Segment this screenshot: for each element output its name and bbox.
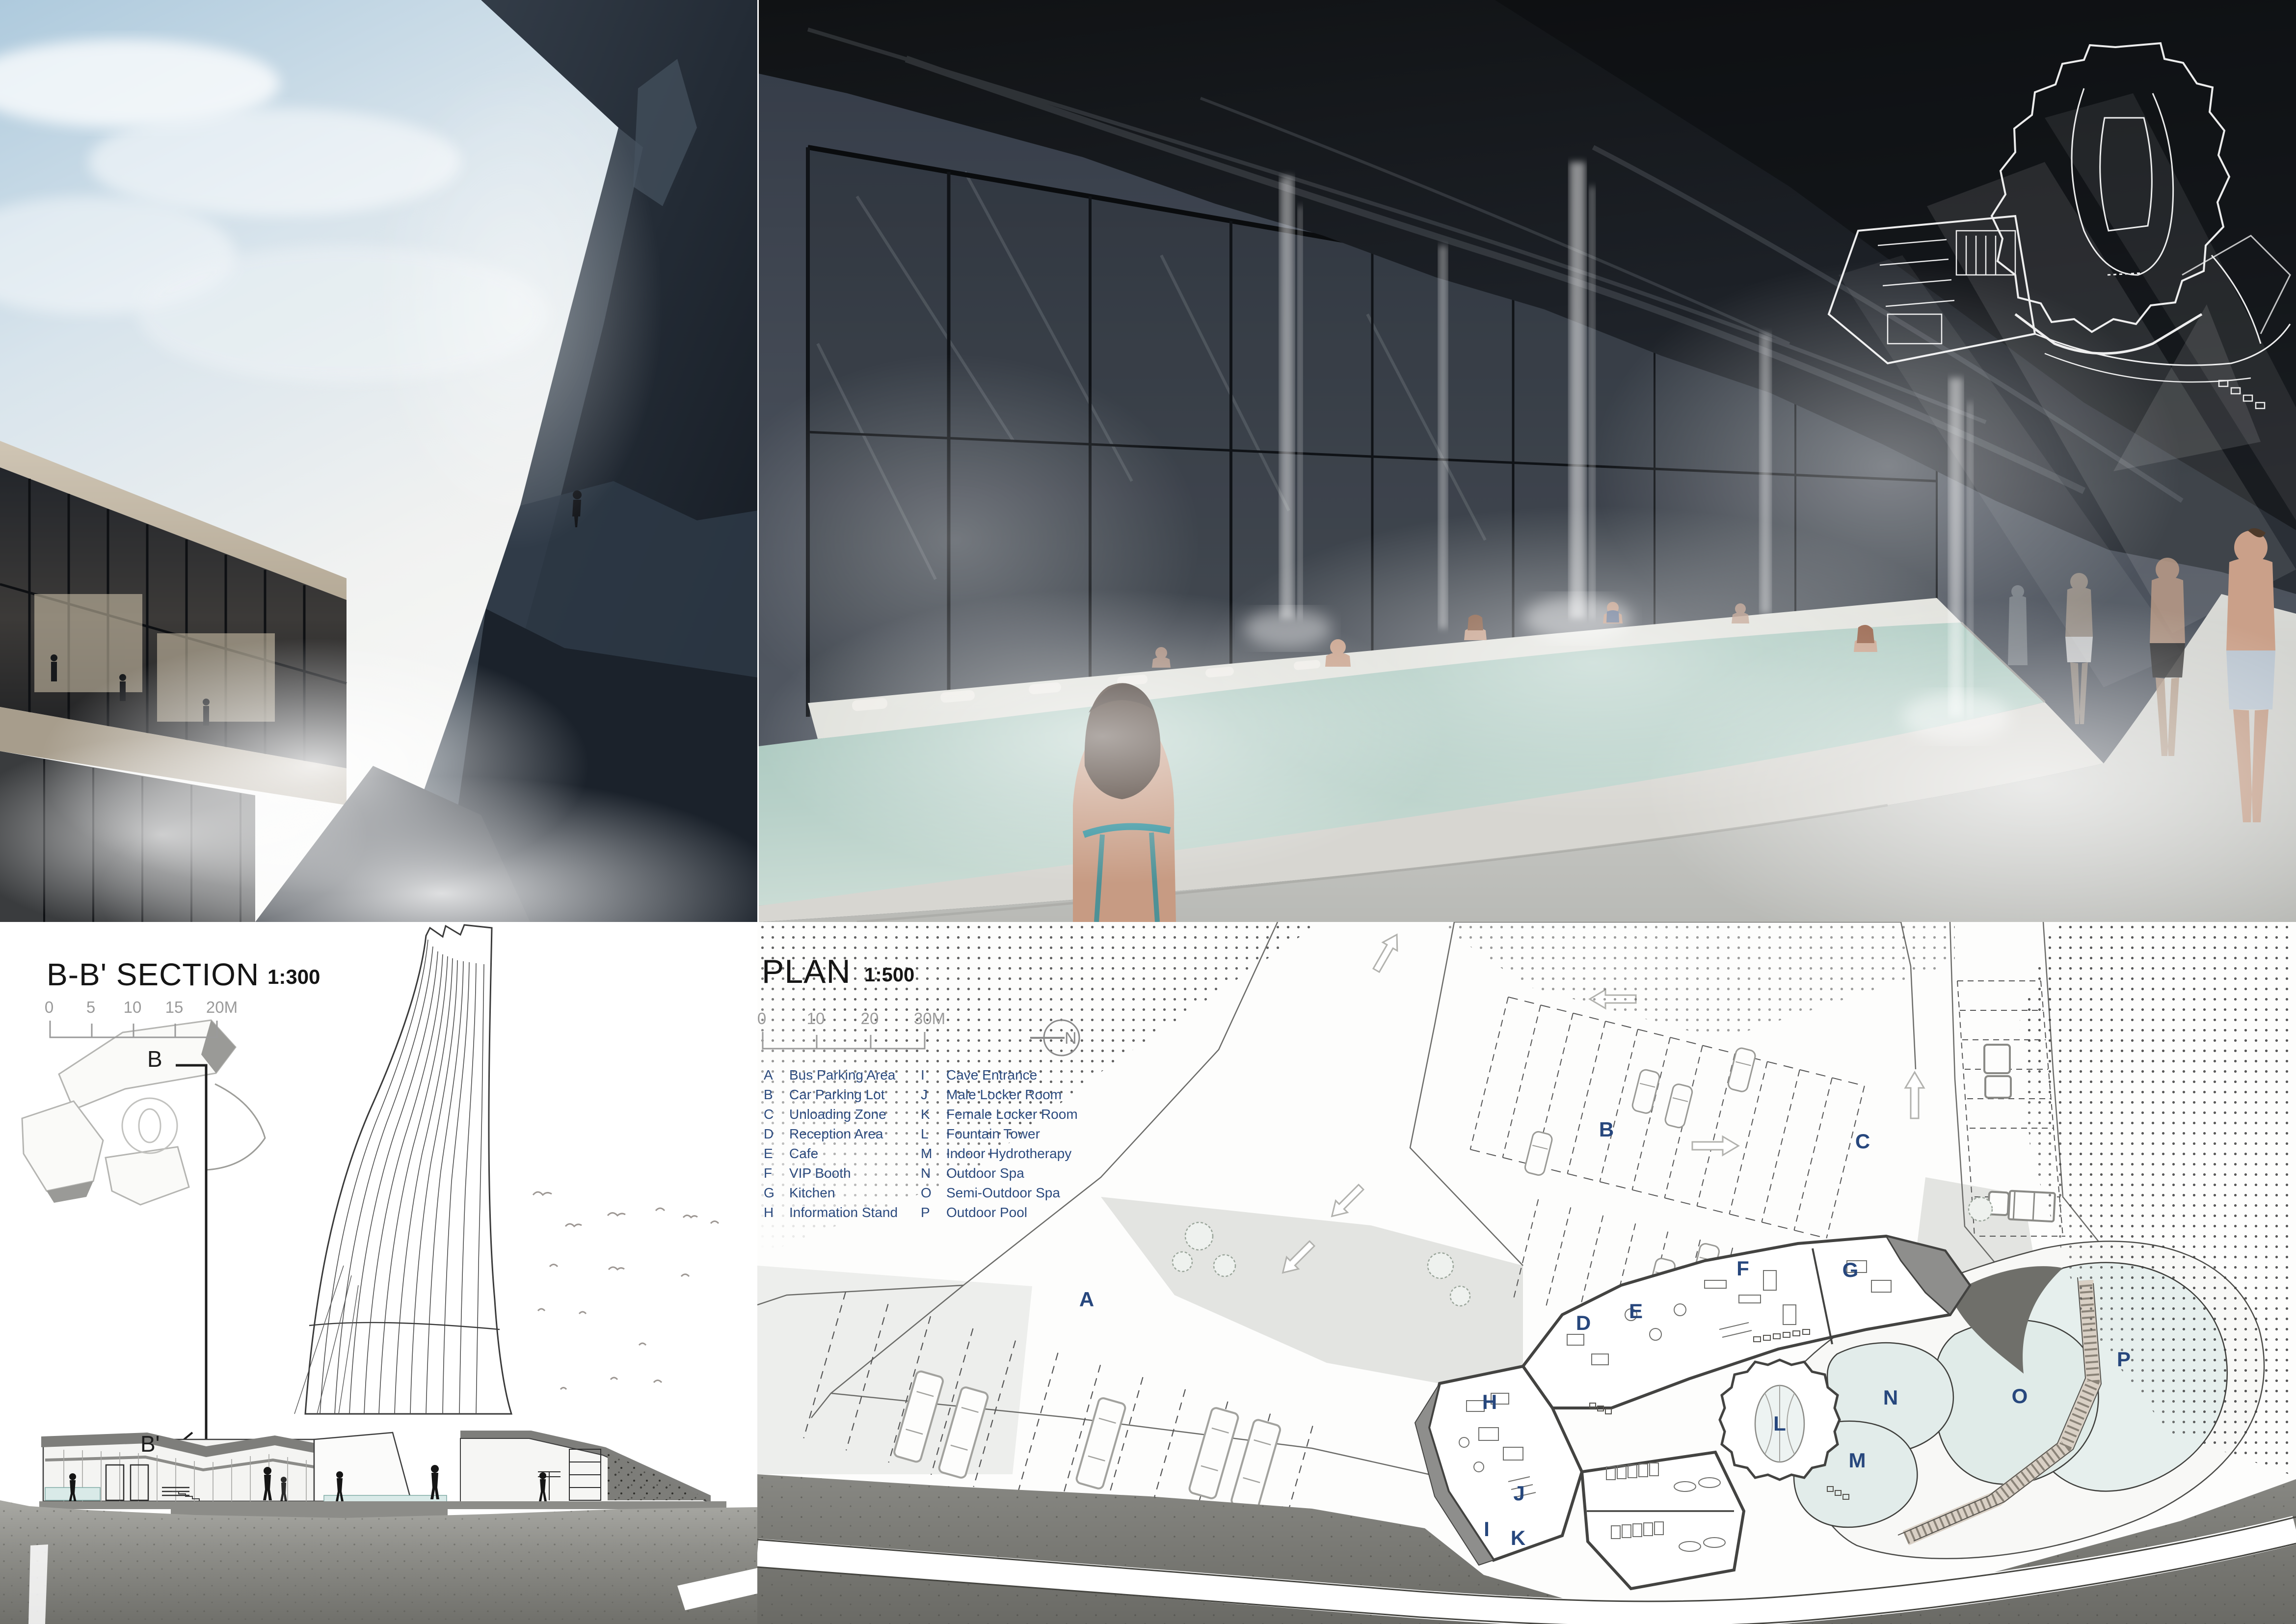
area-label-indoor-hydrotherapy: M	[1849, 1449, 1866, 1472]
legend-item: ECafe	[764, 1144, 898, 1164]
plan-panel: PLAN 1:500 0 10 20 30M N	[757, 922, 2296, 1624]
area-label-information: H	[1482, 1390, 1497, 1414]
legend-item: ICave Entrance	[921, 1065, 1078, 1085]
area-label-car-parking: B	[1599, 1118, 1614, 1141]
north-arrow-icon: N	[1026, 1012, 1090, 1066]
cave-pool-render-image	[759, 0, 2296, 922]
plan-scale-bar: 0 10 20 30M	[762, 1009, 968, 1052]
area-label-fountain-tower: L	[1773, 1412, 1786, 1435]
key-plan-inset	[22, 1020, 265, 1205]
legend-item: NOutdoor Spa	[921, 1164, 1078, 1183]
legend-item: DReception Area	[764, 1124, 898, 1144]
legend-item: FVIP Booth	[764, 1164, 898, 1183]
area-label-outdoor-pool: P	[2117, 1348, 2131, 1371]
area-label-reception: D	[1576, 1311, 1591, 1335]
legend-item: CUnloading Zone	[764, 1105, 898, 1124]
scale-bar-icon	[762, 1031, 929, 1051]
keyplan-cut-start-label: B	[147, 1046, 162, 1072]
canyon-render-drawing	[0, 0, 757, 922]
cliff-watercolor	[0, 1500, 757, 1624]
plan-legend-col1: ABus Parking Area BCar Parking Lot CUnlo…	[764, 1065, 898, 1222]
plan-legend-col2: ICave Entrance JMale Locker Room KFemale…	[921, 1065, 1078, 1222]
legend-item: KFemale Locker Room	[921, 1105, 1078, 1124]
section-panel: B-B' SECTION 1:300 0 5 10 15 20M B B'	[0, 922, 757, 1624]
plan-scale: 1:500	[864, 964, 914, 986]
area-label-kitchen: G	[1842, 1258, 1859, 1282]
fountain-tower-section	[294, 925, 511, 1414]
scale-bar-icon	[49, 1020, 226, 1039]
area-label-female-locker: K	[1511, 1526, 1525, 1550]
canyon-render-image	[0, 0, 757, 922]
area-label-male-locker: J	[1513, 1482, 1524, 1505]
legend-item: MIndoor Hydrotherapy	[921, 1144, 1078, 1164]
legend-item: JMale Locker Room	[921, 1085, 1078, 1105]
section-title: B-B' SECTION	[47, 956, 259, 993]
legend-item: OSemi-Outdoor Spa	[921, 1183, 1078, 1203]
legend-item: HInformation Stand	[764, 1203, 898, 1222]
plan-title: PLAN	[762, 952, 851, 991]
legend-item: POutdoor Pool	[921, 1203, 1078, 1222]
cave-pool-render-drawing	[759, 0, 2296, 922]
area-label-outdoor-spa: N	[1883, 1386, 1898, 1409]
legend-item: ABus Parking Area	[764, 1065, 898, 1085]
section-scale-bar: 0 5 10 15 20M	[49, 998, 226, 1039]
presentation-board: B-B' SECTION 1:300 0 5 10 15 20M B B'	[0, 0, 2296, 1624]
area-label-bus-parking: A	[1079, 1288, 1094, 1311]
legend-item: BCar Parking Lot	[764, 1085, 898, 1105]
birds	[533, 1192, 719, 1389]
section-cut-line	[176, 1065, 206, 1460]
area-label-cave-entrance: I	[1484, 1517, 1490, 1541]
area-label-vip-booth: F	[1736, 1257, 1749, 1280]
area-label-cafe: E	[1629, 1299, 1643, 1323]
area-label-unloading: C	[1855, 1130, 1870, 1153]
legend-item: GKitchen	[764, 1183, 898, 1203]
north-letter: N	[1065, 1029, 1077, 1048]
keyplan-cut-end-label: B'	[140, 1431, 160, 1457]
area-label-semi-outdoor-spa: O	[2012, 1384, 2028, 1408]
section-scale: 1:300	[267, 965, 320, 989]
legend-item: LFountain Tower	[921, 1124, 1078, 1144]
